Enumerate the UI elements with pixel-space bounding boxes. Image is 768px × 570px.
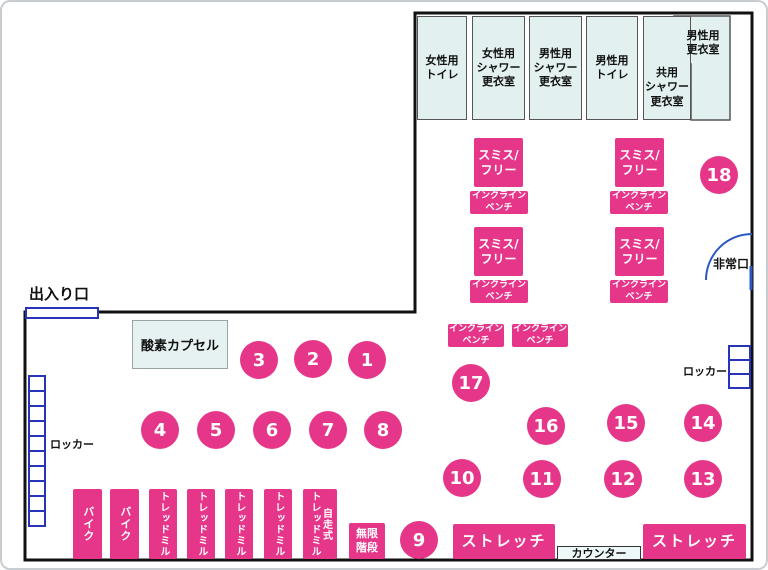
station-circle-4: 4 bbox=[141, 411, 179, 449]
stretch-area-right: ストレッチ bbox=[643, 524, 746, 559]
station-circle-18: 18 bbox=[700, 156, 738, 194]
incline-bench-1: インクライン ベンチ bbox=[470, 191, 528, 214]
incline-bench-2: インクライン ベンチ bbox=[610, 191, 668, 214]
emergency-exit-label: 非常口 bbox=[713, 255, 749, 272]
smith-free-rack-1: スミス/ フリー bbox=[474, 138, 523, 187]
gym-floor-plan: 女性用 トイレ 女性用 シャワー 更衣室 男性用 シャワー 更衣室 男性用 トイ… bbox=[0, 0, 768, 570]
treadmill-3: トレッドミル bbox=[225, 489, 253, 559]
station-circle-14: 14 bbox=[684, 404, 722, 442]
smith-free-rack-2: スミス/ フリー bbox=[615, 138, 664, 187]
room-womens-toilet: 女性用 トイレ bbox=[417, 16, 467, 120]
entrance-door bbox=[25, 307, 99, 319]
station-circle-12: 12 bbox=[604, 460, 642, 498]
room-mens-shower-changing: 男性用 シャワー 更衣室 bbox=[529, 16, 582, 120]
stretch-area-left: ストレッチ bbox=[453, 524, 555, 559]
locker-left-label: ロッカー bbox=[50, 436, 94, 452]
smith-free-rack-4: スミス/ フリー bbox=[615, 227, 664, 276]
incline-bench-3: インクライン ベンチ bbox=[470, 280, 528, 303]
station-circle-9: 9 bbox=[400, 521, 438, 559]
oxygen-capsule-box: 酸素カプセル bbox=[132, 320, 228, 369]
station-circle-2: 2 bbox=[294, 340, 332, 378]
station-circle-11: 11 bbox=[523, 460, 561, 498]
station-circle-17: 17 bbox=[452, 364, 490, 402]
self-propelled-treadmill: 自走式 トレッドミル bbox=[303, 489, 337, 559]
station-circle-3: 3 bbox=[240, 341, 278, 379]
incline-bench-5: インクライン ベンチ bbox=[448, 324, 504, 347]
station-circle-1: 1 bbox=[348, 341, 386, 379]
room-mens-toilet: 男性用 トイレ bbox=[586, 16, 638, 120]
bike-1: バイク bbox=[73, 489, 102, 559]
room-womens-shower-changing: 女性用 シャワー 更衣室 bbox=[472, 16, 525, 120]
station-circle-7: 7 bbox=[309, 411, 347, 449]
locker-column-right bbox=[728, 345, 751, 389]
room-mens-changing-label: 男性用 更衣室 bbox=[676, 29, 730, 58]
entrance-label: 出入り口 bbox=[29, 283, 89, 304]
incline-bench-6: インクライン ベンチ bbox=[512, 324, 568, 347]
counter-box: カウンター bbox=[557, 546, 641, 560]
treadmill-1: トレッドミル bbox=[149, 489, 177, 559]
smith-free-rack-3: スミス/ フリー bbox=[474, 227, 523, 276]
station-circle-15: 15 bbox=[607, 404, 645, 442]
station-circle-16: 16 bbox=[527, 407, 565, 445]
infinite-stairs: 無限 階段 bbox=[349, 523, 385, 559]
incline-bench-4: インクライン ベンチ bbox=[610, 280, 668, 303]
locker-cell bbox=[28, 510, 46, 527]
station-circle-8: 8 bbox=[364, 411, 402, 449]
treadmill-2: トレッドミル bbox=[187, 489, 215, 559]
treadmill-4: トレッドミル bbox=[264, 489, 292, 559]
station-circle-10: 10 bbox=[443, 459, 481, 497]
station-circle-5: 5 bbox=[197, 411, 235, 449]
locker-right-label: ロッカー bbox=[683, 363, 727, 379]
locker-column-left bbox=[28, 375, 46, 527]
station-circle-6: 6 bbox=[253, 411, 291, 449]
bike-2: バイク bbox=[110, 489, 139, 559]
locker-cell bbox=[728, 373, 751, 389]
station-circle-13: 13 bbox=[684, 460, 722, 498]
